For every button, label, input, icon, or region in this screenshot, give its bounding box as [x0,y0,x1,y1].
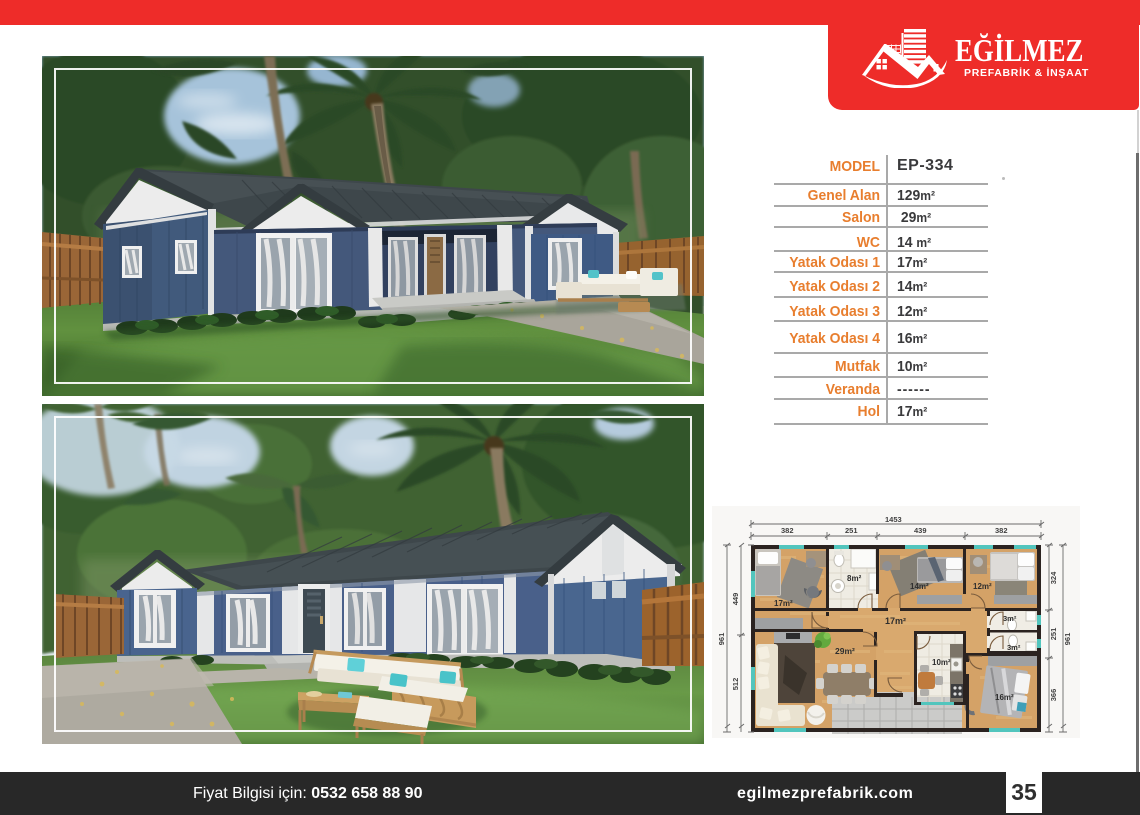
svg-text:1453: 1453 [885,515,902,524]
svg-text:16m²: 16m² [995,693,1014,702]
svg-text:251: 251 [1049,628,1058,641]
svg-text:12m²: 12m² [973,582,992,591]
svg-text:439: 439 [914,526,927,535]
svg-text:251: 251 [845,526,858,535]
svg-text:3m²: 3m² [1003,614,1017,623]
svg-text:382: 382 [995,526,1008,535]
svg-text:961: 961 [717,633,726,646]
svg-text:29m²: 29m² [835,646,855,656]
svg-text:10m²: 10m² [932,658,951,667]
svg-text:14m²: 14m² [910,582,929,591]
svg-text:382: 382 [781,526,794,535]
svg-text:17m²: 17m² [885,616,906,626]
svg-text:961: 961 [1063,633,1072,646]
svg-text:512: 512 [731,678,740,691]
svg-text:17m²: 17m² [774,599,793,608]
svg-text:324: 324 [1049,571,1058,584]
svg-text:8m²: 8m² [847,574,862,583]
svg-text:366: 366 [1049,689,1058,702]
svg-text:3m²: 3m² [1007,643,1021,652]
svg-text:449: 449 [731,593,740,606]
